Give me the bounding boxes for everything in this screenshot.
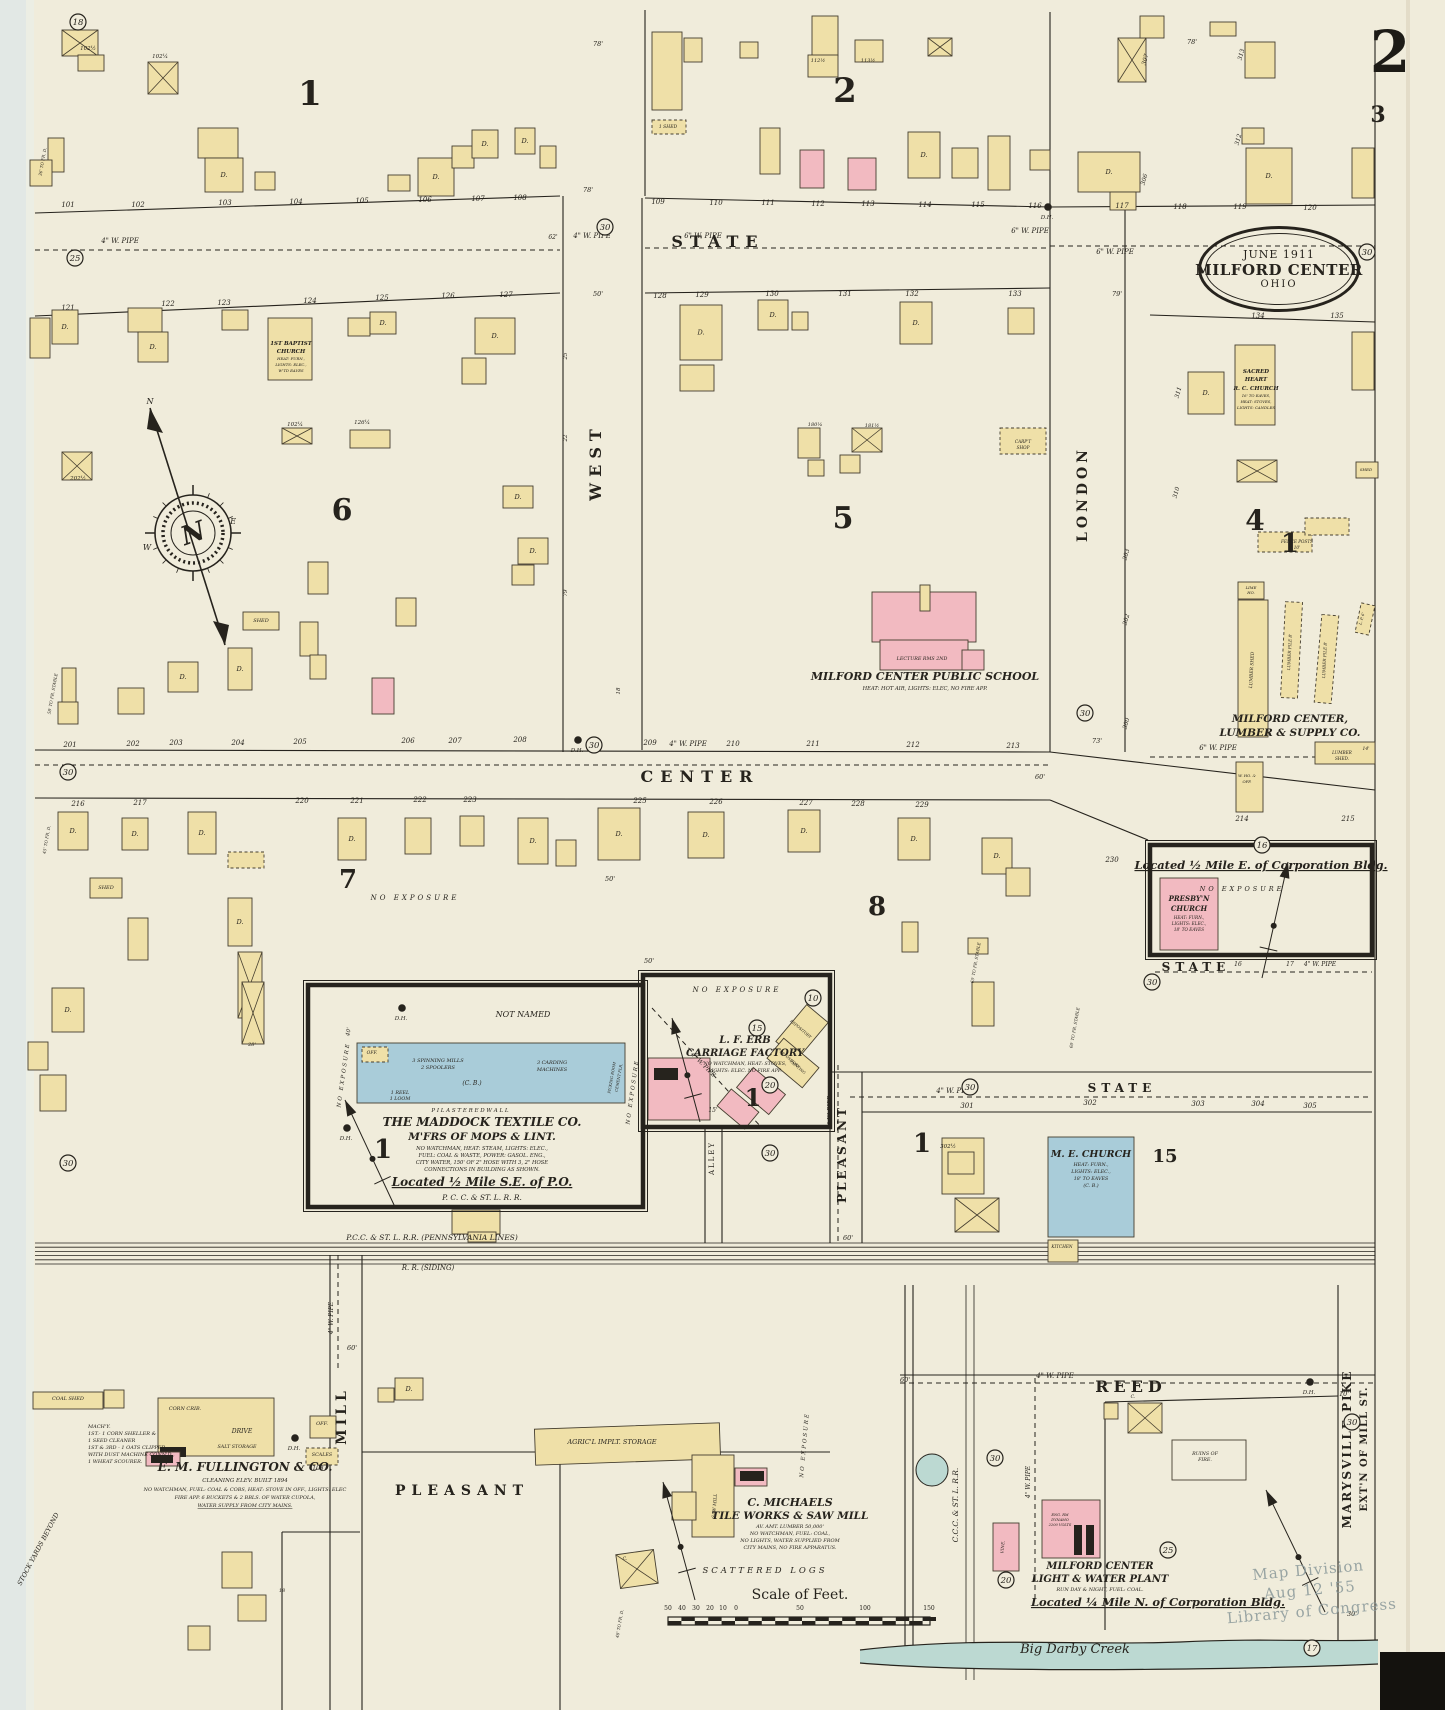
- dwelling-label: D.: [799, 827, 807, 835]
- map-label: DYNAMO: [1050, 1518, 1069, 1522]
- maddock-title: THE MADDOCK TEXTILE CO.: [383, 1115, 582, 1129]
- building: [30, 318, 50, 358]
- map-label: 60' TO FR. STABLE: [1068, 1007, 1080, 1049]
- building: [988, 136, 1010, 190]
- scale-bar-segment: [896, 1617, 909, 1621]
- compass-spoke: [220, 560, 224, 564]
- map-label: 113½: [861, 57, 876, 64]
- map-label: 40': [345, 1027, 353, 1037]
- map-label: 126: [441, 292, 455, 300]
- map-label: 212: [905, 741, 920, 749]
- map-label: 1 LOOM: [390, 1096, 412, 1102]
- building: [540, 146, 556, 168]
- scale-bar-segment: [829, 1621, 842, 1625]
- map-label: 305: [1303, 1102, 1317, 1110]
- water-main-ref-number: 30: [63, 768, 74, 778]
- dh-label: D.H.: [287, 1446, 301, 1452]
- street-label-london: LONDON: [1075, 446, 1091, 542]
- scale-bar-segment: [668, 1621, 681, 1625]
- double-hydrant-marker: [1306, 1378, 1314, 1386]
- scale-bar-segment: [708, 1617, 721, 1621]
- map-label: 50: [796, 1605, 804, 1612]
- map-label: LIGHTS: ELEC.,: [1171, 921, 1207, 926]
- map-label: LUMBER: [1331, 750, 1352, 755]
- fullington-caption: E. M. FULLINGTON & CO.: [157, 1460, 333, 1474]
- map-label: WITH DUST MACHINE CONN'D.,: [88, 1452, 175, 1458]
- map-label: 15': [708, 1107, 718, 1114]
- dwelling-label: D.: [235, 665, 243, 673]
- building: [972, 982, 994, 1026]
- water-main-ref-number: 30: [1362, 248, 1373, 258]
- building: [40, 1075, 66, 1111]
- building: [118, 688, 144, 714]
- water-main-ref-number: 30: [600, 223, 611, 233]
- map-label: 50': [605, 875, 615, 883]
- map-label: 122: [161, 300, 175, 308]
- map-label: STATE: [1162, 960, 1231, 974]
- map-label: 229: [914, 801, 929, 809]
- me-church-label: M. E. CHURCH: [1050, 1149, 1132, 1160]
- scale-bar-segment: [762, 1617, 775, 1621]
- map-label: 119: [1233, 203, 1247, 211]
- map-label: 6" W. PIPE: [1199, 744, 1237, 752]
- building: [1086, 1525, 1094, 1555]
- map-label: 180¼: [808, 421, 823, 428]
- compass-spoke: [228, 548, 233, 550]
- block-number: 6: [332, 493, 353, 528]
- building: [350, 430, 390, 448]
- dh-label: D.H.: [570, 748, 584, 754]
- map-label: 211: [805, 740, 819, 748]
- scale-bar-segment: [789, 1617, 802, 1621]
- map-label: CLEANING ELEV. BUILT 1894: [202, 1478, 288, 1484]
- map-label: 114: [918, 201, 931, 209]
- map-label: 4" W. PIPE: [827, 1095, 834, 1129]
- building: [1236, 762, 1263, 812]
- building: [800, 150, 824, 188]
- map-label: 303: [1122, 548, 1132, 561]
- dwelling-label: D.: [219, 171, 227, 179]
- building: [654, 1068, 678, 1080]
- building: [238, 1595, 266, 1621]
- building: [348, 318, 370, 336]
- water-main-ref-number: 30: [1080, 709, 1091, 719]
- building: [902, 922, 918, 952]
- map-label: 58' TO FR. STABLE: [46, 673, 58, 715]
- map-label: 304: [1251, 1100, 1264, 1108]
- map-label: 302½: [940, 1143, 956, 1150]
- building: [952, 148, 978, 178]
- building: [405, 818, 431, 854]
- street-label-reed: REED: [1095, 1377, 1167, 1396]
- compass-spoke: [177, 568, 179, 573]
- map-label: 16: [1234, 961, 1242, 968]
- map-label: 127: [499, 291, 513, 299]
- map-label: 4" W. PIPE: [328, 1301, 335, 1335]
- dwelling-label: D.: [528, 547, 536, 555]
- building: [1104, 1403, 1118, 1419]
- boundary-line: [35, 798, 1050, 800]
- map-label: 105: [355, 197, 369, 205]
- map-label: 215: [1340, 815, 1355, 823]
- scale-bar-segment: [748, 1621, 761, 1625]
- michaels-caption: C. MICHAELS: [747, 1496, 832, 1509]
- map-label: SCALES: [312, 1452, 333, 1458]
- street-label-west: WEST: [586, 423, 605, 502]
- map-label: 6" W. PIPE: [684, 232, 722, 240]
- map-label: C.: [1131, 1394, 1136, 1400]
- building: [760, 128, 780, 174]
- building: [372, 678, 394, 714]
- building: [1006, 868, 1030, 896]
- building: [1245, 42, 1275, 78]
- street-label-mill: MILL: [334, 1387, 350, 1445]
- water-main-ref-number: 20: [1000, 1576, 1012, 1586]
- map-label: 206: [400, 737, 415, 745]
- map-label: 222: [412, 796, 427, 804]
- map-label: SHED.: [1335, 756, 1349, 761]
- boundary-line: [1105, 1396, 1338, 1402]
- map-label: W: [143, 543, 152, 552]
- map-label: 102¼: [287, 421, 303, 428]
- map-label: CARP'T: [1015, 439, 1032, 444]
- map-label: 113: [861, 200, 875, 208]
- paper-fold: [1406, 0, 1410, 1660]
- north-arrow-dot: [370, 1156, 376, 1162]
- map-label: 18: [616, 687, 622, 694]
- map-label: 112: [811, 200, 825, 208]
- map-label: 73': [1092, 737, 1102, 745]
- map-label: 17: [1286, 961, 1294, 968]
- water-main-ref-number: 30: [589, 741, 600, 751]
- building: [462, 358, 486, 384]
- map-label: 3 SPINNING MILLS: [412, 1058, 464, 1064]
- dwelling-label: D.: [60, 323, 68, 331]
- map-label: 132: [905, 290, 919, 298]
- presbyn-church-label: PRESBY'N: [1168, 894, 1210, 903]
- railroad-label: P.C.C. & ST. L. R.R. (PENNSYLVANIA LINES…: [345, 1233, 518, 1242]
- map-label: FIRE.: [1197, 1457, 1212, 1463]
- building: [684, 38, 702, 62]
- map-label: 134: [1251, 312, 1264, 320]
- building: [222, 310, 248, 330]
- map-label: R. C. CHURCH: [1232, 386, 1279, 392]
- map-label: FENCE POSTS: [1280, 539, 1313, 544]
- title-state: OHIO: [1260, 279, 1297, 290]
- dwelling-label: D.: [68, 827, 76, 835]
- maddock-not-named: NOT NAMED: [495, 1010, 551, 1019]
- map-label: 6" W. PIPE: [1011, 227, 1049, 235]
- map-label: 302: [1122, 613, 1132, 626]
- map-label: NO EXPOSURE: [692, 986, 782, 994]
- map-label: CITY MAINS, NO FIRE APPARATUS.: [743, 1545, 836, 1551]
- building: [378, 1388, 394, 1402]
- map-label: 18' TO EAVES: [1174, 927, 1204, 932]
- map-label: 210: [725, 740, 740, 748]
- dwelling-label: D.: [378, 319, 386, 327]
- map-label: RUINS OF: [1191, 1451, 1218, 1457]
- dwelling-label: D.: [130, 830, 138, 838]
- map-label: 135: [1330, 312, 1344, 320]
- map-label: ENG. RM: [1050, 1513, 1069, 1517]
- dh-label: D.H.: [1040, 215, 1054, 221]
- water-main-ref-number: 30: [765, 1149, 776, 1159]
- map-label: 220: [294, 797, 309, 805]
- map-label: CHURCH: [1171, 904, 1208, 913]
- building: [798, 428, 820, 458]
- map-label: SCATTERED LOGS: [702, 1566, 827, 1576]
- map-label: 121: [61, 304, 74, 312]
- title-oval: JUNE 1911 MILFORD CENTER OHIO: [1198, 226, 1360, 312]
- dh-label: D.H.: [394, 1016, 408, 1022]
- map-label: 213: [1005, 742, 1020, 750]
- map-label: OFF.: [1243, 779, 1252, 784]
- scale-bar-segment: [869, 1617, 882, 1621]
- creek-label: Big Darby Creek: [1019, 1642, 1130, 1657]
- compass-spoke: [163, 503, 167, 507]
- map-label: M'FRS OF MOPS & LINT.: [407, 1131, 556, 1143]
- dwelling-label: D.: [520, 137, 528, 145]
- street-label-pleasant: PLEASANT: [835, 1105, 849, 1203]
- map-label: COAL SHED: [52, 1396, 84, 1402]
- map-label: 101: [61, 201, 74, 209]
- building: [308, 562, 328, 594]
- north-arrow-head: [671, 1018, 681, 1035]
- map-label: 103: [218, 199, 232, 207]
- map-label: 227: [798, 799, 813, 807]
- building: [740, 42, 758, 58]
- map-label: 230: [1104, 856, 1119, 864]
- building: [222, 1552, 252, 1588]
- building: [62, 668, 76, 706]
- map-label: W. HO. &: [1238, 773, 1256, 778]
- dwelling-label: D.: [431, 173, 439, 181]
- map-label: 115: [971, 201, 985, 209]
- double-hydrant-marker: [343, 1124, 351, 1132]
- erb-title: L. F. ERB: [718, 1035, 770, 1046]
- building: [740, 1471, 764, 1481]
- dwelling-label: D.: [1104, 168, 1112, 176]
- building: [58, 702, 78, 724]
- north-arrow-head: [1266, 1490, 1277, 1507]
- map-label: 0: [734, 1605, 738, 1612]
- water-main-ref-number: 30: [990, 1454, 1001, 1464]
- dh-label: D.H.: [1302, 1390, 1316, 1396]
- map-label: 60': [843, 1234, 853, 1242]
- map-label: 107: [471, 195, 485, 203]
- boundary-line: [1050, 800, 1148, 840]
- dwelling-label: D.: [404, 1385, 412, 1393]
- compass-spoke: [208, 493, 210, 498]
- building: [1140, 16, 1164, 38]
- block-number: 1: [298, 74, 322, 114]
- map-label: 126¼: [354, 419, 370, 426]
- map-label: HEAT: FURN.,: [276, 356, 305, 361]
- baptist-church-label: 1ST BAPTIST: [270, 341, 312, 347]
- dwelling-label: D.: [528, 837, 536, 845]
- block-number: 15: [1152, 1146, 1177, 1167]
- map-label: 30: [692, 1605, 700, 1612]
- map-label: MACH'Y.: [87, 1424, 111, 1430]
- compass-spoke: [163, 560, 167, 564]
- building: [920, 585, 930, 611]
- map-label: NO EXPOSURE: [336, 1042, 351, 1109]
- building: [948, 1152, 974, 1174]
- double-hydrant-marker: [574, 736, 582, 744]
- scale-bar-segment: [775, 1621, 788, 1625]
- map-label: 110: [709, 199, 723, 207]
- map-label: HEAT: HOT AIR, LIGHTS: ELEC, NO FIRE APP…: [862, 686, 988, 692]
- map-label: 1 SHED: [659, 124, 678, 130]
- map-label: 102¼: [152, 53, 168, 60]
- map-label: NO EXPOSURE: [1199, 885, 1285, 893]
- map-label: 207: [447, 737, 462, 745]
- map-label: 16' TO EAVES,: [1242, 393, 1270, 398]
- building: [1074, 1525, 1082, 1555]
- map-label: NO EXPOSURE: [799, 1412, 811, 1479]
- map-label: 100: [859, 1605, 871, 1612]
- scale-label: Scale of Feet.: [752, 1587, 849, 1603]
- map-label: 108: [513, 194, 527, 202]
- north-arrow-tick: [374, 1176, 390, 1184]
- map-label: 205: [292, 738, 307, 746]
- water-main-ref-number: 30: [63, 1159, 74, 1169]
- map-label: 221: [349, 797, 363, 805]
- street-label-center: CENTER: [641, 767, 760, 786]
- block-number: 2: [833, 71, 857, 111]
- map-label: 203: [168, 739, 183, 747]
- map-label: 111: [761, 199, 774, 207]
- north-arrow-dot: [1271, 923, 1277, 929]
- dwelling-label: D.: [513, 493, 521, 501]
- map-label: WATER SUPPLY FROM CITY MAINS.: [198, 1503, 293, 1509]
- building: [1352, 148, 1374, 198]
- map-label: 18: [279, 1588, 285, 1594]
- dwelling-label: D.: [148, 343, 156, 351]
- map-label: W'TD EAVES: [278, 368, 304, 373]
- map-label: HEAT: FURN.,: [1173, 915, 1205, 920]
- map-label: DRIVE: [231, 1428, 253, 1435]
- map-label: 204: [230, 739, 244, 747]
- map-label: 214: [1234, 815, 1248, 823]
- map-label: 106: [418, 196, 432, 204]
- title-city: MILFORD CENTER: [1195, 261, 1363, 279]
- map-label: OFF.: [367, 1050, 378, 1056]
- boundary-line: [35, 293, 560, 316]
- dwelling-label: D.: [347, 835, 355, 843]
- map-label: P I L A S T E R E D W A L L: [430, 1108, 509, 1114]
- scale-bar-segment: [909, 1621, 922, 1625]
- scale-bar-segment: [735, 1617, 748, 1621]
- map-label: 4" W. PIPE: [1025, 1465, 1032, 1499]
- map-label: KITCHEN: [1050, 1244, 1072, 1249]
- map-label: (C. B.): [1083, 1182, 1098, 1189]
- map-label: LIGHTS: ELEC.,: [274, 362, 306, 367]
- map-label: SHED: [1360, 467, 1373, 472]
- block-number: 5: [833, 501, 854, 536]
- north-arrow-head: [345, 1100, 356, 1117]
- north-arrow-dot: [678, 1544, 684, 1550]
- block-number: 1: [374, 1135, 392, 1165]
- map-label: 10: [719, 1605, 727, 1612]
- map-label: 116: [1028, 202, 1042, 210]
- map-label: 104: [289, 198, 302, 206]
- map-label: 223: [462, 796, 477, 804]
- implement-storage-label: AGRIC'L IMPLT. STORAGE: [566, 1438, 656, 1446]
- building: [78, 55, 104, 71]
- map-label: RUN DAY & NIGHT, FUEL: COAL.: [1055, 1587, 1144, 1593]
- map-label: 201: [62, 741, 76, 749]
- map-label: 50': [593, 290, 603, 298]
- map-label: NO WATCHMAN, FUEL: COAL & COBS, HEAT: ST…: [143, 1487, 347, 1493]
- map-label: 25: [563, 352, 569, 360]
- building: [1030, 150, 1050, 170]
- building: [1305, 518, 1349, 535]
- map-label: 125: [375, 294, 389, 302]
- compass-monogram: N: [176, 515, 211, 552]
- compass-needle-head: [147, 408, 163, 433]
- map-label: 102: [131, 201, 145, 209]
- building: [128, 918, 148, 960]
- building: [255, 172, 275, 190]
- map-label: 311: [1174, 386, 1184, 399]
- block-number: 8: [868, 892, 886, 922]
- block-number: 1: [913, 1129, 931, 1159]
- map-label: 10': [1339, 1390, 1349, 1398]
- map-label: SALT STORAGE: [217, 1444, 257, 1450]
- building: [460, 816, 484, 846]
- building: [198, 128, 238, 158]
- map-label: TILE WORKS & SAW MILL: [712, 1510, 869, 1522]
- scale-bar-segment: [856, 1621, 869, 1625]
- dwelling-label: D.: [490, 332, 498, 340]
- building: [880, 640, 968, 670]
- map-label: 28': [247, 1042, 256, 1048]
- map-label: 10': [1294, 545, 1300, 550]
- map-label: 133: [1008, 290, 1022, 298]
- map-label: 124: [303, 297, 316, 305]
- map-label: EXT'N OF MILL ST.: [1359, 1387, 1370, 1512]
- building: [1210, 22, 1236, 36]
- rr-water-tank: [916, 1454, 948, 1486]
- map-label: 1ST.- 1 CORN SHELLER &: [88, 1431, 157, 1437]
- dwelling-label: D.: [919, 151, 927, 159]
- building: [556, 840, 576, 866]
- map-label: 79: [563, 589, 569, 596]
- map-label: HO.: [1246, 590, 1254, 595]
- dwelling-label: D.: [911, 319, 919, 327]
- map-label: 112½: [811, 57, 826, 64]
- map-label: 123: [217, 299, 231, 307]
- compass-spoke: [153, 548, 158, 550]
- water-main-ref-number: 18: [73, 18, 84, 28]
- building: [808, 460, 824, 476]
- dwelling-label: D.: [1264, 172, 1272, 180]
- double-hydrant-marker: [398, 1004, 406, 1012]
- map-label: 50': [644, 957, 654, 965]
- map-label: 62': [548, 234, 558, 241]
- water-main-ref-number: 25: [1162, 1546, 1174, 1556]
- water-main-ref-number: 30: [965, 1083, 976, 1093]
- sacred-heart-label: SACRED: [1243, 369, 1269, 375]
- map-label: SHED: [98, 885, 113, 891]
- scale-bar-segment: [882, 1621, 895, 1625]
- map-label: NO EXPOSURE: [370, 894, 460, 902]
- double-hydrant-marker: [291, 1434, 299, 1442]
- building: [848, 158, 876, 190]
- page-number: 2: [1360, 18, 1420, 86]
- map-label: 202½: [69, 475, 86, 482]
